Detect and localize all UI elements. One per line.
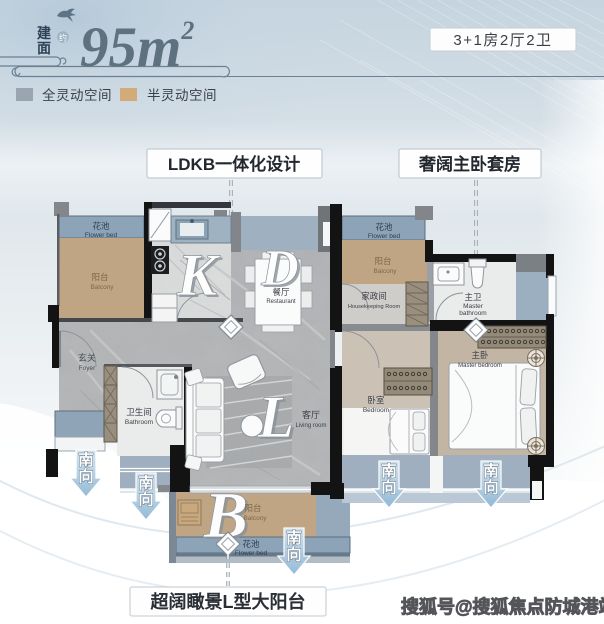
svg-text:Bathroom: Bathroom — [125, 419, 153, 426]
svg-text:Flower bed: Flower bed — [85, 232, 118, 239]
svg-text:向: 向 — [138, 490, 154, 509]
svg-text:3+1房2厅2卫: 3+1房2厅2卫 — [453, 32, 552, 49]
svg-text:L: L — [257, 384, 295, 450]
svg-text:Restaurant: Restaurant — [266, 299, 296, 305]
svg-text:卫生间: 卫生间 — [126, 407, 152, 417]
svg-text:阳台: 阳台 — [374, 256, 391, 266]
svg-text:Balcony: Balcony — [90, 284, 114, 291]
svg-text:Bedroom: Bedroom — [363, 407, 389, 414]
svg-text:玄关: 玄关 — [78, 352, 96, 363]
svg-text:Housekeeping Room: Housekeeping Room — [348, 304, 401, 310]
svg-text:家政间: 家政间 — [361, 291, 387, 301]
svg-text:Balcony: Balcony — [243, 515, 267, 522]
svg-text:阳台: 阳台 — [91, 272, 108, 282]
svg-text:花池: 花池 — [375, 222, 393, 232]
svg-text:全灵动空间: 全灵动空间 — [42, 87, 112, 103]
svg-text:半灵动空间: 半灵动空间 — [147, 88, 217, 103]
svg-text:向: 向 — [286, 545, 302, 564]
svg-text:南: 南 — [381, 461, 397, 480]
svg-text:面: 面 — [37, 40, 51, 56]
svg-text:Balcony: Balcony — [373, 268, 397, 275]
svg-text:Master bedroom: Master bedroom — [458, 363, 502, 369]
svg-text:LDKB一体化设计: LDKB一体化设计 — [168, 154, 300, 174]
svg-text:Master: Master — [463, 303, 484, 310]
svg-text:花池: 花池 — [92, 221, 110, 231]
svg-text:K: K — [176, 242, 221, 308]
svg-text:客厅: 客厅 — [302, 409, 320, 420]
svg-text:主卧: 主卧 — [471, 350, 489, 360]
svg-text:南: 南 — [138, 473, 154, 492]
svg-text:餐厅: 餐厅 — [272, 287, 290, 297]
svg-text:Living room: Living room — [295, 423, 326, 429]
svg-text:Flower bed: Flower bed — [235, 550, 268, 557]
svg-text:超阔瞰景L型大阳台: 超阔瞰景L型大阳台 — [151, 591, 306, 612]
svg-text:bathroom: bathroom — [459, 310, 486, 317]
svg-text:Foyer: Foyer — [79, 365, 96, 372]
svg-text:约: 约 — [59, 33, 67, 43]
svg-text:Flower bed: Flower bed — [368, 233, 401, 240]
svg-text:向: 向 — [381, 478, 397, 497]
svg-text:搜狐号@搜狐焦点防城港站: 搜狐号@搜狐焦点防城港站 — [401, 596, 604, 617]
svg-text:花池: 花池 — [242, 539, 260, 549]
svg-text:95m2: 95m2 — [80, 16, 194, 79]
svg-text:奢阔主卧套房: 奢阔主卧套房 — [418, 154, 521, 174]
svg-text:南: 南 — [78, 450, 94, 469]
svg-text:主卫: 主卫 — [464, 292, 482, 302]
svg-text:卧室: 卧室 — [367, 395, 385, 405]
svg-text:阳台: 阳台 — [244, 503, 261, 513]
svg-text:向: 向 — [78, 467, 94, 486]
svg-text:向: 向 — [483, 478, 499, 497]
svg-text:南: 南 — [286, 528, 302, 547]
svg-text:建: 建 — [37, 25, 51, 41]
svg-text:南: 南 — [483, 461, 499, 480]
